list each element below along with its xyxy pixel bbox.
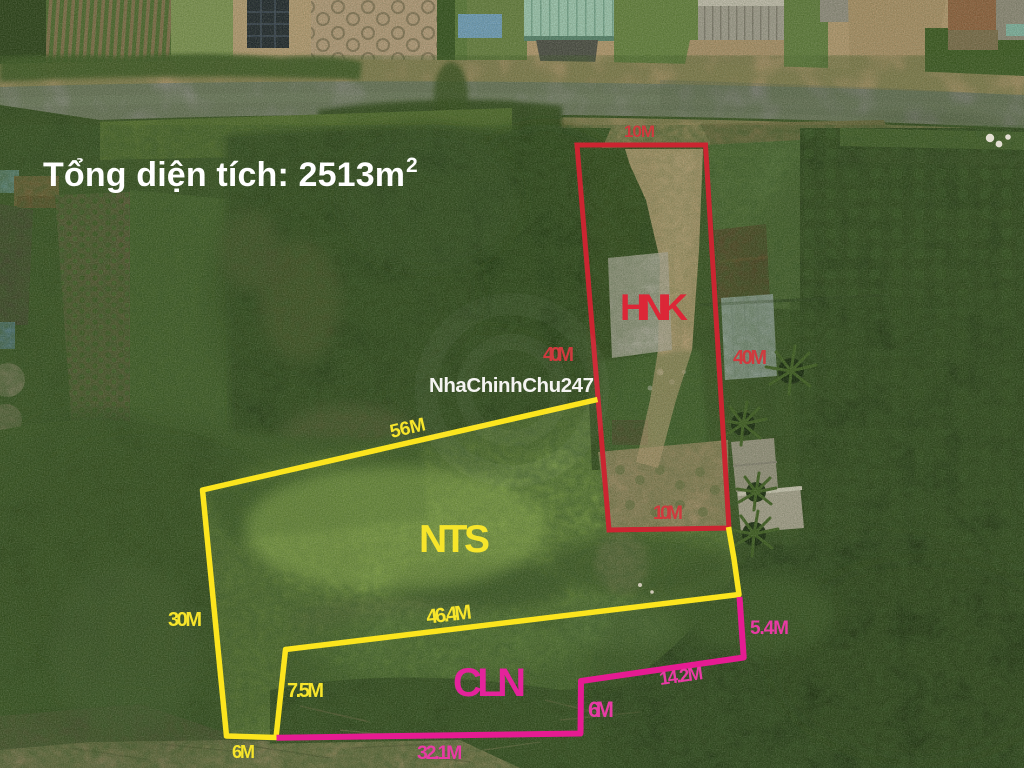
svg-text:6M: 6M [588,697,614,722]
svg-text:NhaChinhChu247: NhaChinhChu247 [429,374,594,397]
svg-text:Tổng diện tích: 2513m: Tổng diện tích: 2513m [43,156,405,194]
svg-text:2: 2 [406,154,418,177]
svg-text:7.5M: 7.5M [287,680,324,702]
svg-text:HNK: HNK [620,287,688,328]
svg-text:40M: 40M [543,344,574,366]
svg-text:5.4M: 5.4M [750,618,789,639]
svg-text:32.1M: 32.1M [417,742,462,764]
svg-text:10M: 10M [624,122,655,141]
svg-text:10M: 10M [653,503,683,524]
svg-text:CLN: CLN [453,661,526,705]
svg-text:40M: 40M [733,347,767,369]
svg-text:6M: 6M [232,742,255,762]
svg-text:NTS: NTS [419,518,490,561]
svg-text:30M: 30M [168,609,202,631]
